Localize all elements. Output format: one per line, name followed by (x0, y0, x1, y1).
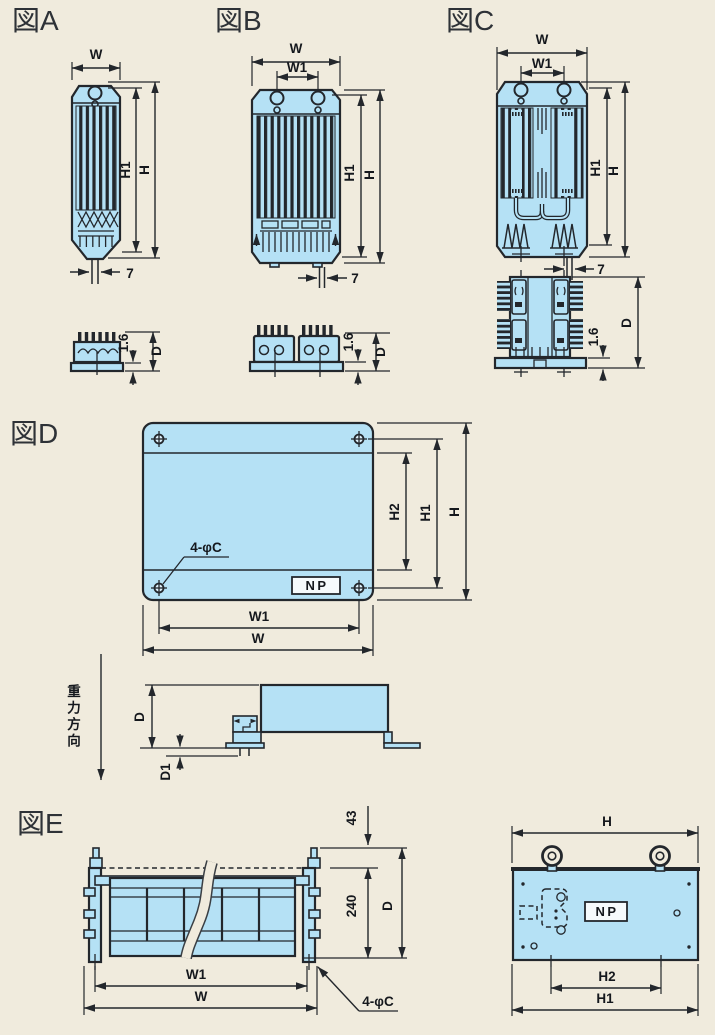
fig-a-front-view (72, 86, 120, 284)
fig-c-dim-thickness-label: 1.6 (586, 327, 601, 346)
fig-a-dim-d-label: D (149, 346, 164, 356)
fig-e: 図E 43 (17, 806, 700, 1016)
fig-b-dim-thickness: 1.6 (341, 332, 390, 385)
fig-d-label: 図D (10, 418, 58, 449)
fig-b-dim-thickness-label: 1.6 (341, 332, 356, 351)
fig-e-hole-callout: 4-φC (318, 967, 398, 1011)
technical-drawing-page: 図A W H1 H 7 (0, 0, 715, 1035)
fig-d-top-view: 4-φC NP (143, 423, 373, 600)
fig-b-dim-h1-label: H1 (342, 164, 357, 182)
eyelet-icon (312, 92, 325, 105)
fig-d-dim-w1: W1 (159, 600, 359, 634)
fig-d-dim-h1-label: H1 (418, 504, 433, 522)
fig-e-nameplate-label: NP (595, 904, 618, 919)
fig-b-dim-w1-label: W1 (287, 60, 308, 75)
fig-c-dim-lead: 7 (544, 262, 605, 277)
fin-area (76, 106, 116, 210)
fin-area (570, 281, 583, 311)
fig-c-dim-thickness: 1.6 (586, 327, 645, 381)
fig-d-dim-h2: H2 (377, 453, 412, 570)
nameplate: NP (292, 577, 340, 594)
pins (78, 332, 115, 342)
fig-c-side-view (495, 270, 586, 377)
fig-e-dim-top-offset: 43 (320, 806, 407, 848)
fig-d-side-view (226, 685, 420, 756)
fig-c-dim-w-label: W (536, 32, 549, 47)
fig-a-dim-w-label: W (90, 47, 103, 62)
pins (257, 325, 333, 336)
side-tab (84, 888, 95, 896)
fig-d-dim-d-label: D (132, 712, 147, 722)
fig-b: 図B W W1 (215, 5, 390, 385)
fig-e-dim-h1-label: H1 (596, 991, 614, 1006)
fig-e-dim-h2-label: H2 (598, 969, 615, 984)
fig-d-dim-w-label: W (252, 631, 265, 646)
fig-c: 図C (446, 5, 645, 381)
fig-b-dim-h-label: H (362, 170, 377, 180)
base-plate (250, 362, 343, 371)
fig-d-dim-h2-label: H2 (387, 503, 402, 520)
fig-e-dim-w1-label: W1 (186, 967, 207, 982)
eyelet-icon (558, 84, 571, 97)
side-tab (84, 930, 95, 938)
fig-d-nameplate-label: NP (305, 578, 328, 593)
fig-b-dim-lead: 7 (298, 271, 359, 286)
fig-e-dim-top-offset-label: 43 (344, 810, 359, 826)
fig-e-side-view: NP (511, 847, 700, 968)
fig-a-dim-thickness-label: 1.6 (116, 333, 131, 352)
fig-c-dim-d-label: D (619, 318, 634, 328)
fig-d-holes-label: 4-φC (190, 540, 222, 555)
fig-a: 図A W H1 H 7 (12, 5, 164, 385)
fig-e-dim-d: D (380, 848, 402, 958)
fig-d-dim-w1-label: W1 (249, 609, 270, 624)
fig-c-dim-w1-label: W1 (532, 56, 553, 71)
fin-area (497, 281, 510, 311)
fig-a-dim-lead-label: 7 (126, 266, 134, 281)
fig-a-dim-h-label: H (137, 165, 152, 175)
fig-a-dim-w: W (72, 47, 120, 80)
fig-c-dim-h1-label: H1 (588, 159, 603, 177)
fin-area (257, 116, 335, 218)
fig-b-side-view (250, 325, 343, 377)
fig-e-front-view (84, 848, 320, 970)
fig-d-dim-h-label: H (447, 507, 462, 517)
fig-a-dim-h1-label: H1 (118, 161, 133, 179)
side-tab (84, 910, 95, 918)
fin-area (497, 319, 510, 349)
fig-d-dim-d1-label: D1 (158, 763, 173, 781)
mounting-foot (226, 743, 264, 748)
fig-b-dim-w-label: W (290, 41, 303, 56)
mounting-foot (384, 743, 420, 748)
terminal-block (233, 716, 257, 732)
side-tab (309, 888, 320, 896)
fig-a-label: 図A (12, 5, 59, 36)
side-tab (309, 910, 320, 918)
fig-a-dim-lead: 7 (70, 266, 134, 281)
fig-d-dim-d1: D1 (158, 734, 238, 781)
fig-c-label: 図C (446, 5, 494, 36)
fig-e-holes-label: 4-φC (362, 994, 394, 1009)
fig-b-label: 図B (215, 5, 262, 36)
fig-b-dim-lead-label: 7 (351, 271, 359, 286)
fig-c-dim-lead-label: 7 (597, 262, 605, 277)
fig-e-dim-w-label: W (195, 989, 208, 1004)
mounting-notch (313, 263, 322, 267)
nameplate: NP (585, 902, 627, 921)
fig-e-dim-d-label: D (380, 901, 395, 911)
mounting-studs (514, 368, 571, 377)
mounting-notch (270, 263, 279, 267)
fig-c-dim-h-label: H (606, 166, 621, 176)
fig-e-dim-element-height-label: 240 (344, 895, 359, 918)
eyelet-icon (515, 84, 528, 97)
side-tab (309, 930, 320, 938)
fig-b-dim-w1: W1 (277, 60, 318, 90)
dimension-drawings: 図A W H1 H 7 (0, 0, 715, 1035)
fig-e-dim-h2: H2 (551, 967, 661, 994)
fin-area (570, 319, 583, 349)
fig-b-front-view (252, 90, 340, 288)
fig-b-dim-d-label: D (373, 347, 388, 357)
fig-e-label: 図E (17, 808, 64, 839)
gravity-direction-label: 重力方向 (62, 684, 82, 750)
fig-c-dim-w1: W1 (521, 56, 564, 84)
fig-e-dim-h-label: H (602, 814, 612, 829)
eyelet-icon (89, 87, 102, 100)
eyelet-icon (271, 92, 284, 105)
fig-c-front-view (497, 82, 587, 280)
